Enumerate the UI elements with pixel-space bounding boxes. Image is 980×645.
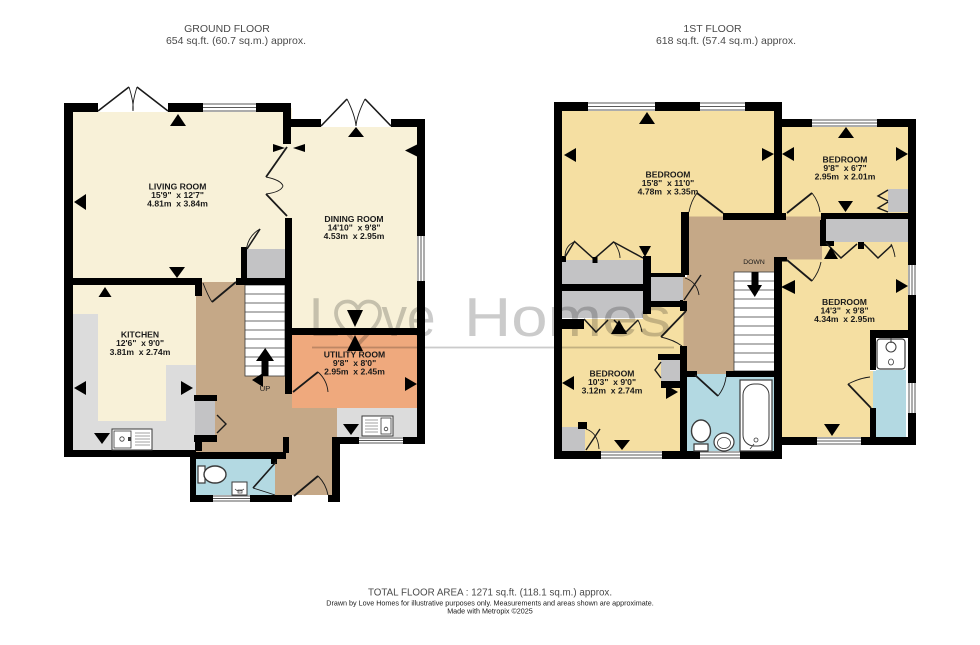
- svg-text:2.95m x 2.45m: 2.95m x 2.45m: [324, 366, 385, 376]
- svg-text:3.12m x 2.74m: 3.12m x 2.74m: [582, 386, 643, 396]
- svg-text:654 sq.ft. (60.7 sq.m.) approx: 654 sq.ft. (60.7 sq.m.) approx.: [166, 35, 306, 47]
- svg-text:GROUND FLOOR: GROUND FLOOR: [184, 23, 270, 35]
- svg-text:Homes: Homes: [464, 286, 671, 348]
- svg-text:4.53m x 2.95m: 4.53m x 2.95m: [324, 231, 385, 241]
- svg-text:2.95m x 2.01m: 2.95m x 2.01m: [815, 172, 876, 182]
- svg-text:618 sq.ft. (57.4 sq.m.) approx: 618 sq.ft. (57.4 sq.m.) approx.: [656, 35, 796, 47]
- svg-text:4.78m x 3.35m: 4.78m x 3.35m: [638, 187, 699, 197]
- svg-text:Made with Metropix ©2025: Made with Metropix ©2025: [447, 607, 533, 616]
- svg-text:4.34m x 2.95m: 4.34m x 2.95m: [814, 314, 875, 324]
- svg-text:TOTAL FLOOR AREA : 1271 sq.ft.: TOTAL FLOOR AREA : 1271 sq.ft. (118.1 sq…: [368, 588, 612, 599]
- svg-text:3.81m x 2.74m: 3.81m x 2.74m: [110, 347, 171, 357]
- svg-text:4.81m x 3.84m: 4.81m x 3.84m: [147, 199, 208, 209]
- svg-text:1ST FLOOR: 1ST FLOOR: [683, 23, 742, 35]
- svg-text:DOWN: DOWN: [743, 259, 765, 266]
- svg-text:ve: ve: [382, 286, 436, 348]
